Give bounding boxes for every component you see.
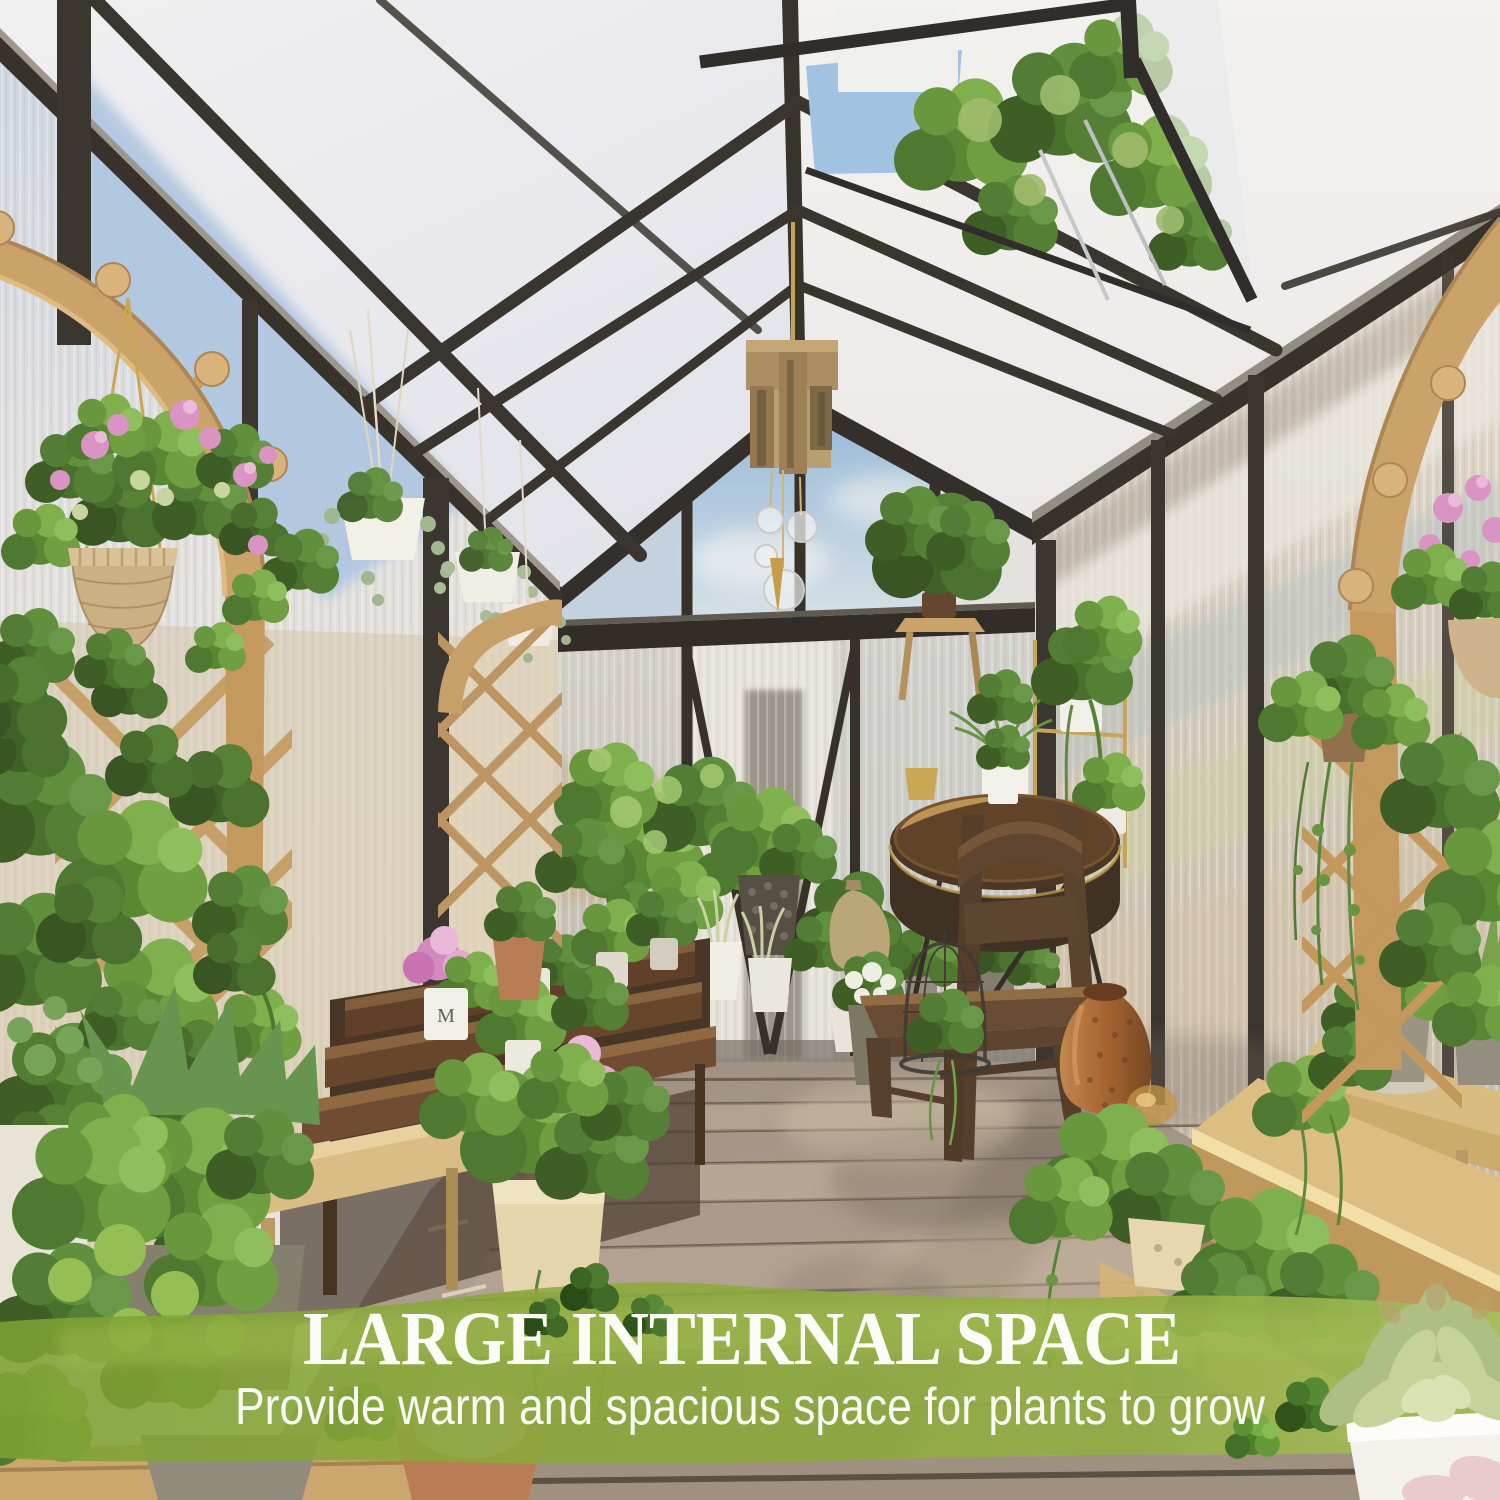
svg-text:Provide warm and spacious spac: Provide warm and spacious space for plan…: [235, 1378, 1265, 1436]
svg-text:LARGE INTERNAL SPACE: LARGE INTERNAL SPACE: [303, 1297, 1181, 1381]
